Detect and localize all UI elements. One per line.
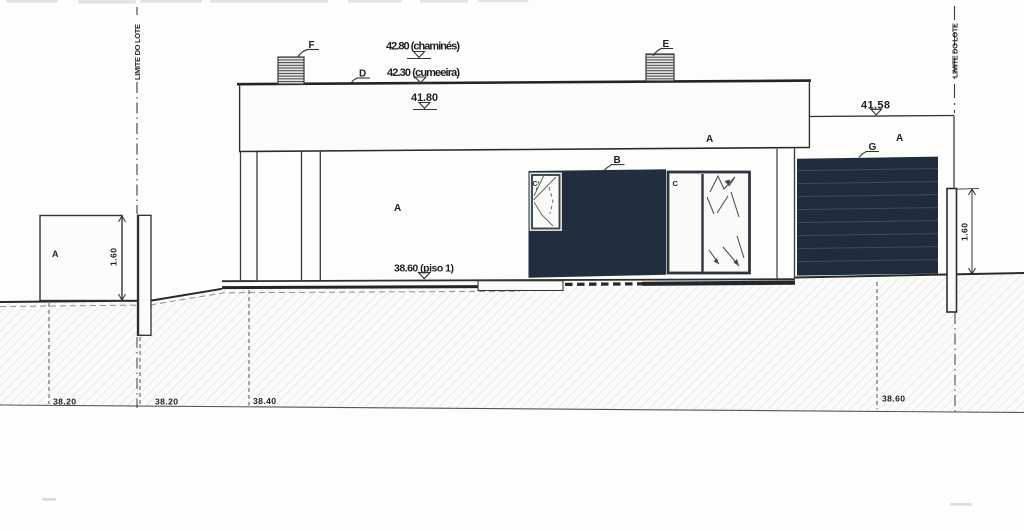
svg-text:38.40: 38.40 (253, 396, 276, 406)
svg-text:LIMITE DO LOTE: LIMITE DO LOTE (133, 24, 142, 80)
svg-text:D: D (359, 69, 366, 80)
svg-text:A: A (896, 133, 903, 144)
svg-text:38.20: 38.20 (155, 397, 178, 407)
svg-text:A: A (394, 203, 401, 214)
svg-text:42.80 (chaminés): 42.80 (chaminés) (386, 41, 460, 53)
svg-text:38.20: 38.20 (53, 397, 76, 407)
svg-text:G: G (869, 142, 877, 153)
svg-text:B: B (614, 155, 621, 166)
svg-text:A: A (706, 134, 713, 145)
svg-text:LIMITE DO LOTE: LIMITE DO LOTE (951, 23, 960, 78)
svg-text:E: E (663, 39, 670, 50)
svg-text:A: A (52, 249, 59, 259)
svg-text:1.60: 1.60 (960, 223, 970, 241)
svg-text:C: C (673, 179, 679, 188)
svg-text:1.60: 1.60 (109, 248, 119, 266)
svg-text:F: F (309, 40, 315, 51)
svg-text:C: C (533, 181, 538, 188)
svg-text:38.60: 38.60 (882, 394, 905, 404)
